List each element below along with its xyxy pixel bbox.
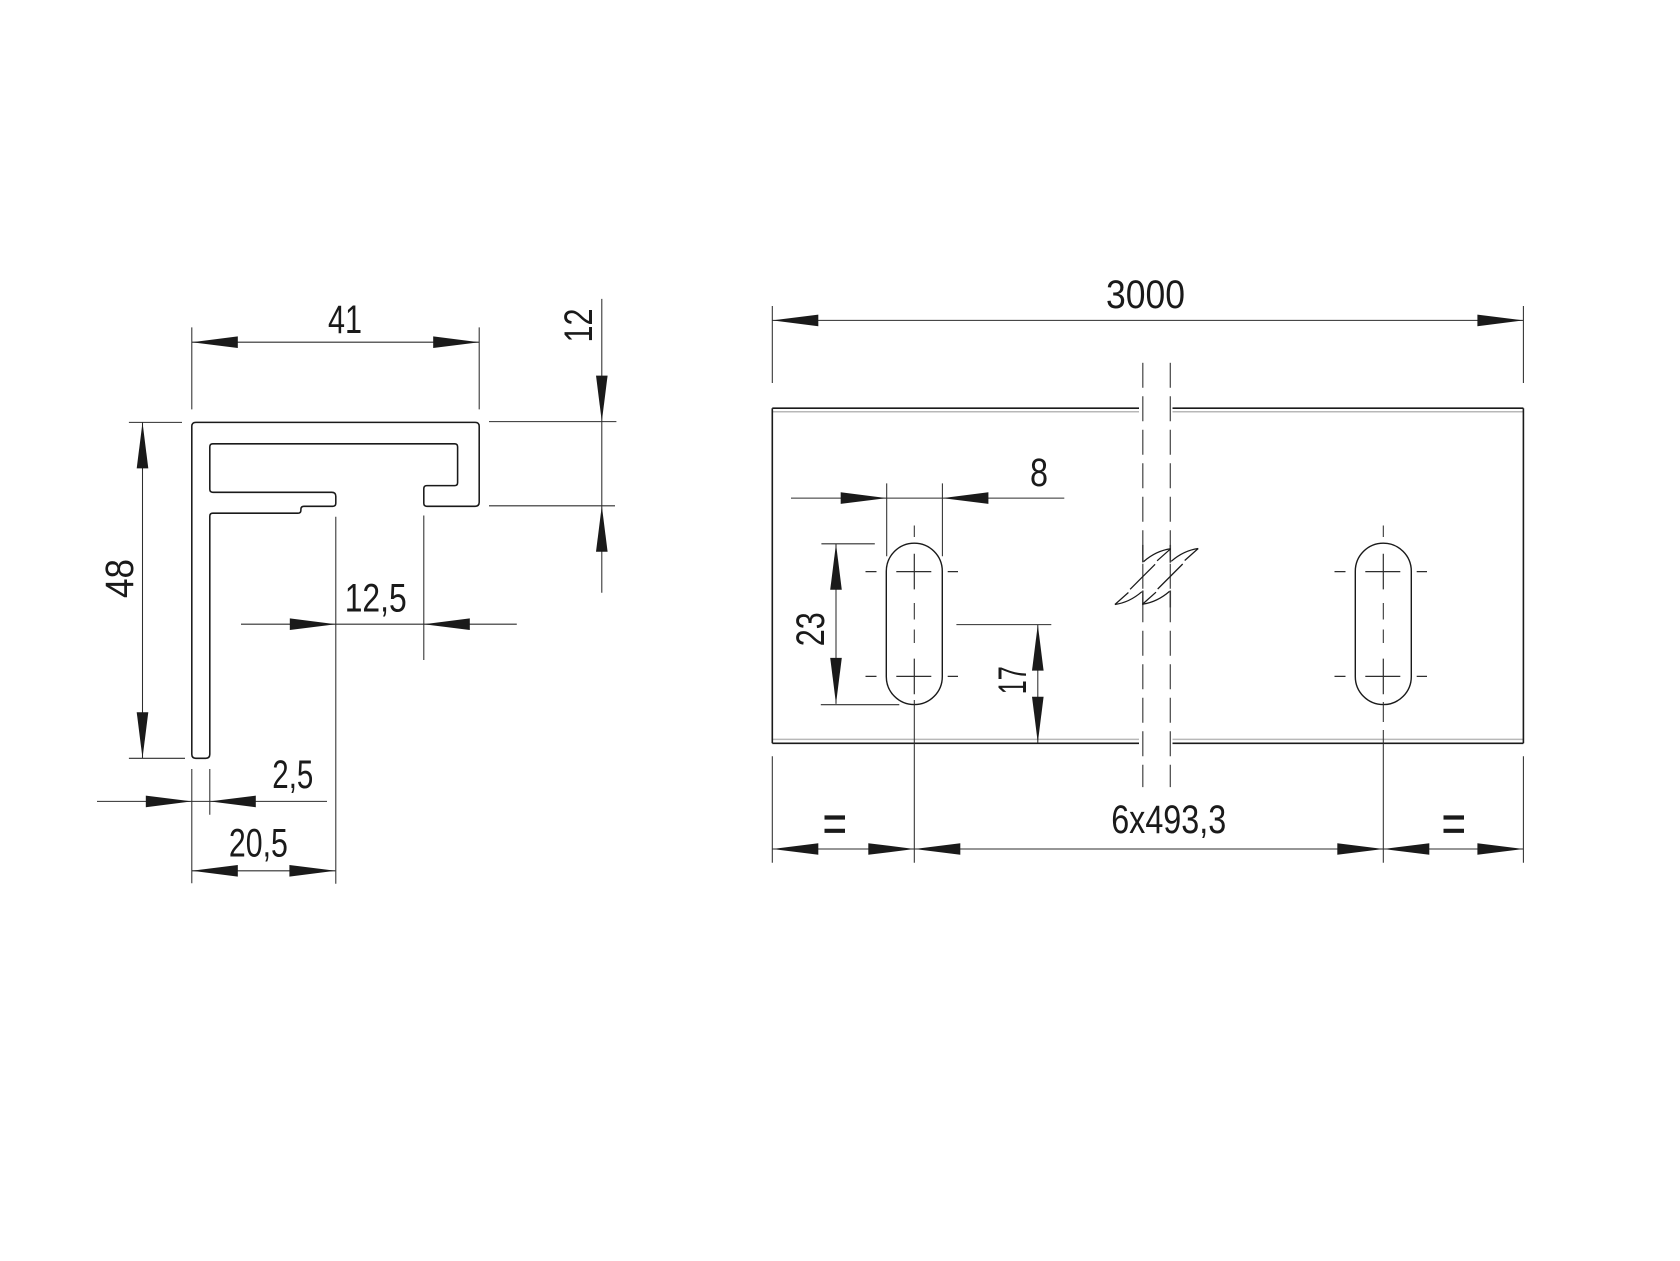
svg-text:3000: 3000 [1106,273,1185,317]
svg-text:41: 41 [328,298,362,342]
svg-text:12: 12 [557,309,601,343]
svg-text:8: 8 [1030,451,1048,495]
svg-text:48: 48 [98,559,142,598]
svg-text:17: 17 [991,666,1035,694]
svg-text:23: 23 [789,612,833,646]
svg-text:6x493,3: 6x493,3 [1111,798,1226,842]
svg-text:12,5: 12,5 [345,577,407,621]
svg-text:2,5: 2,5 [272,753,313,797]
svg-text:20,5: 20,5 [229,822,288,866]
